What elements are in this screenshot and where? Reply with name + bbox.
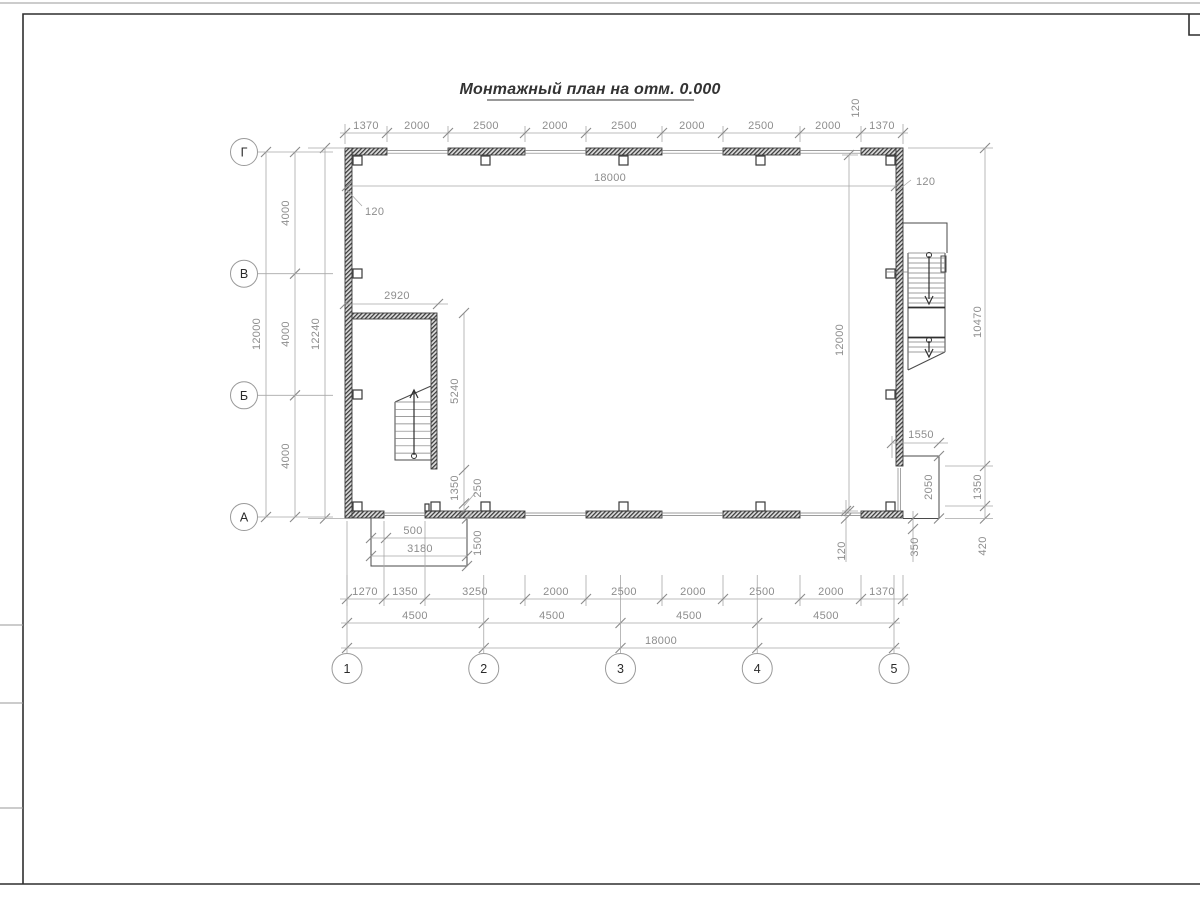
dim-label: 120 — [850, 98, 862, 117]
page-title: Монтажный план на отм. 0.000 — [459, 81, 720, 98]
partition-wall-vertical — [431, 319, 437, 469]
dim-label: 2000 — [818, 586, 844, 598]
dim-label: 1350 — [449, 475, 461, 501]
dim-label: 2000 — [543, 586, 569, 598]
dim-label: 18000 — [645, 635, 677, 647]
dim-label: 4000 — [280, 200, 292, 226]
axis-col-label: 3 — [617, 662, 624, 676]
axis-col-label: 2 — [480, 662, 487, 676]
dim-label: 1370 — [869, 120, 895, 132]
dim-label: 12000 — [251, 318, 263, 350]
axis-row-label: Г — [241, 146, 248, 160]
dim-label: 12000 — [834, 324, 846, 356]
dim-label: 2500 — [749, 586, 775, 598]
axis-row-label: В — [240, 267, 248, 281]
partition-wall-horizontal — [352, 313, 437, 319]
dim-label: 2500 — [611, 120, 637, 132]
dim-label: 250 — [472, 478, 484, 497]
dim-label: 3250 — [462, 586, 488, 598]
dim-label: 2500 — [748, 120, 774, 132]
dim-label: 4000 — [280, 321, 292, 347]
dim-label: 4500 — [539, 610, 565, 622]
dim-label: 5240 — [449, 378, 461, 404]
dim-label: 1370 — [353, 120, 379, 132]
dim-label: 18000 — [594, 172, 626, 184]
dim-label: 12240 — [310, 318, 322, 350]
dim-label: 4500 — [676, 610, 702, 622]
dim-label: 350 — [909, 537, 921, 556]
dim-label: 2500 — [473, 120, 499, 132]
interior-staircase — [395, 386, 431, 460]
dim-label: 2050 — [923, 474, 935, 500]
dim-label: 2000 — [815, 120, 841, 132]
dim-label: 4500 — [813, 610, 839, 622]
axis-row-label: Б — [240, 389, 248, 403]
dim-label: 1500 — [472, 530, 484, 556]
dim-label: 3180 — [407, 543, 433, 555]
dim-label: 2920 — [384, 290, 410, 302]
floor-plan-drawing: Монтажный план на отм. 0.000 — [0, 0, 1200, 900]
dim-label: 1350 — [392, 586, 418, 598]
drawing-frame — [0, 3, 1200, 884]
dim-label: 4500 — [402, 610, 428, 622]
dim-label: 2000 — [404, 120, 430, 132]
exterior-staircase — [886, 223, 947, 370]
walls — [345, 148, 903, 518]
axis-col-label: 4 — [754, 662, 761, 676]
plan-title: Монтажный план на отм. 0.000 — [459, 81, 720, 100]
dim-label: 1270 — [352, 586, 378, 598]
dim-label: 2000 — [679, 120, 705, 132]
dim-label: 120 — [836, 541, 848, 560]
axis-col-label: 1 — [344, 662, 351, 676]
dim-label: 1370 — [869, 586, 895, 598]
axis-bubbles-cols: 1 2 3 4 5 — [332, 654, 909, 684]
dim-label: 2000 — [680, 586, 706, 598]
dim-label: 2000 — [542, 120, 568, 132]
axis-col-label: 5 — [891, 662, 898, 676]
dim-label: 2500 — [611, 586, 637, 598]
dim-label: 1350 — [972, 474, 984, 500]
dim-label: 10470 — [972, 306, 984, 338]
dim-label: 4000 — [280, 443, 292, 469]
dim-label: 420 — [977, 536, 989, 555]
dim-label: 500 — [403, 525, 422, 537]
dim-label: 120 — [916, 176, 935, 188]
dim-label: 1550 — [908, 429, 934, 441]
axis-row-label: А — [240, 511, 249, 525]
drawing-sheet: Монтажный план на отм. 0.000 — [0, 0, 1200, 900]
dim-label: 120 — [365, 206, 384, 218]
dimension-lines — [258, 124, 993, 653]
dimension-labels: 1370 2000 2500 2000 2500 2000 2500 2000 … — [251, 98, 989, 647]
